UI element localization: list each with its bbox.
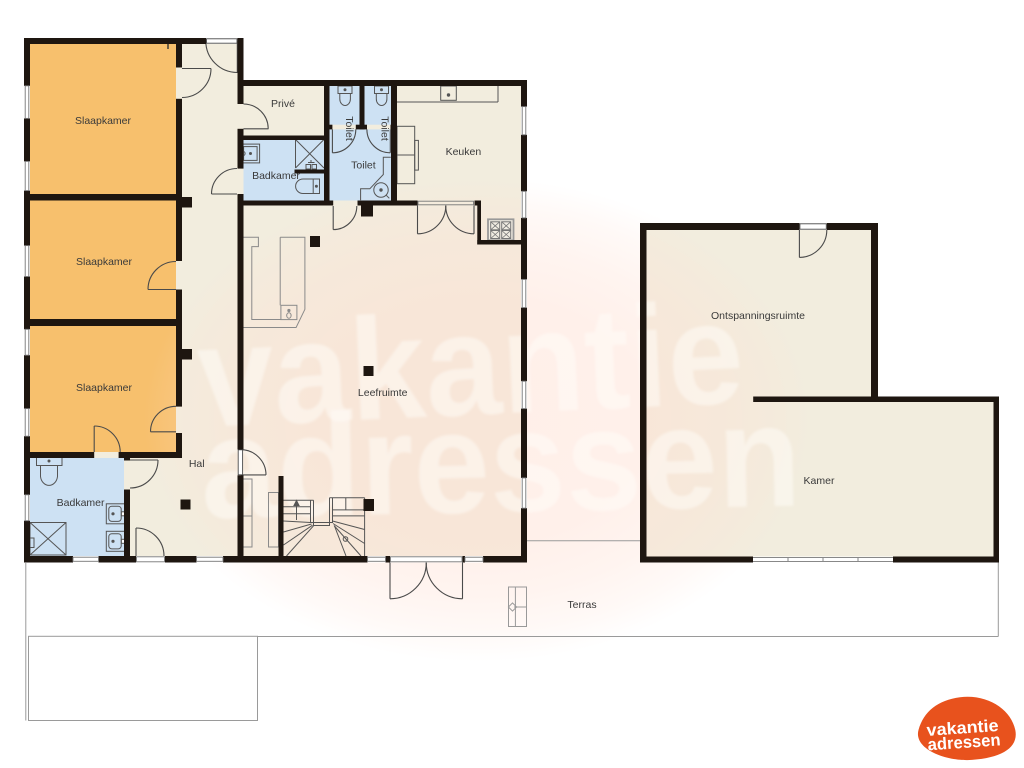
svg-text:Badkamer: Badkamer [252,170,300,182]
svg-text:adressen: adressen [199,374,802,549]
svg-text:Slaapkamer: Slaapkamer [76,256,133,268]
svg-text:Toilet: Toilet [351,160,376,172]
svg-text:Toilet: Toilet [379,116,391,141]
svg-text:Keuken: Keuken [446,146,482,158]
svg-text:Slaapkamer: Slaapkamer [75,115,132,127]
svg-text:Leefruimte: Leefruimte [358,387,408,399]
svg-text:Terras: Terras [567,599,596,611]
svg-text:Kamer: Kamer [804,475,835,487]
svg-text:Hal: Hal [189,458,205,470]
svg-text:Toilet: Toilet [343,116,355,141]
svg-text:Privé: Privé [271,98,295,110]
svg-text:Ontspanningsruimte: Ontspanningsruimte [711,310,805,322]
svg-text:Badkamer: Badkamer [57,497,105,509]
svg-text:Slaapkamer: Slaapkamer [76,382,133,394]
